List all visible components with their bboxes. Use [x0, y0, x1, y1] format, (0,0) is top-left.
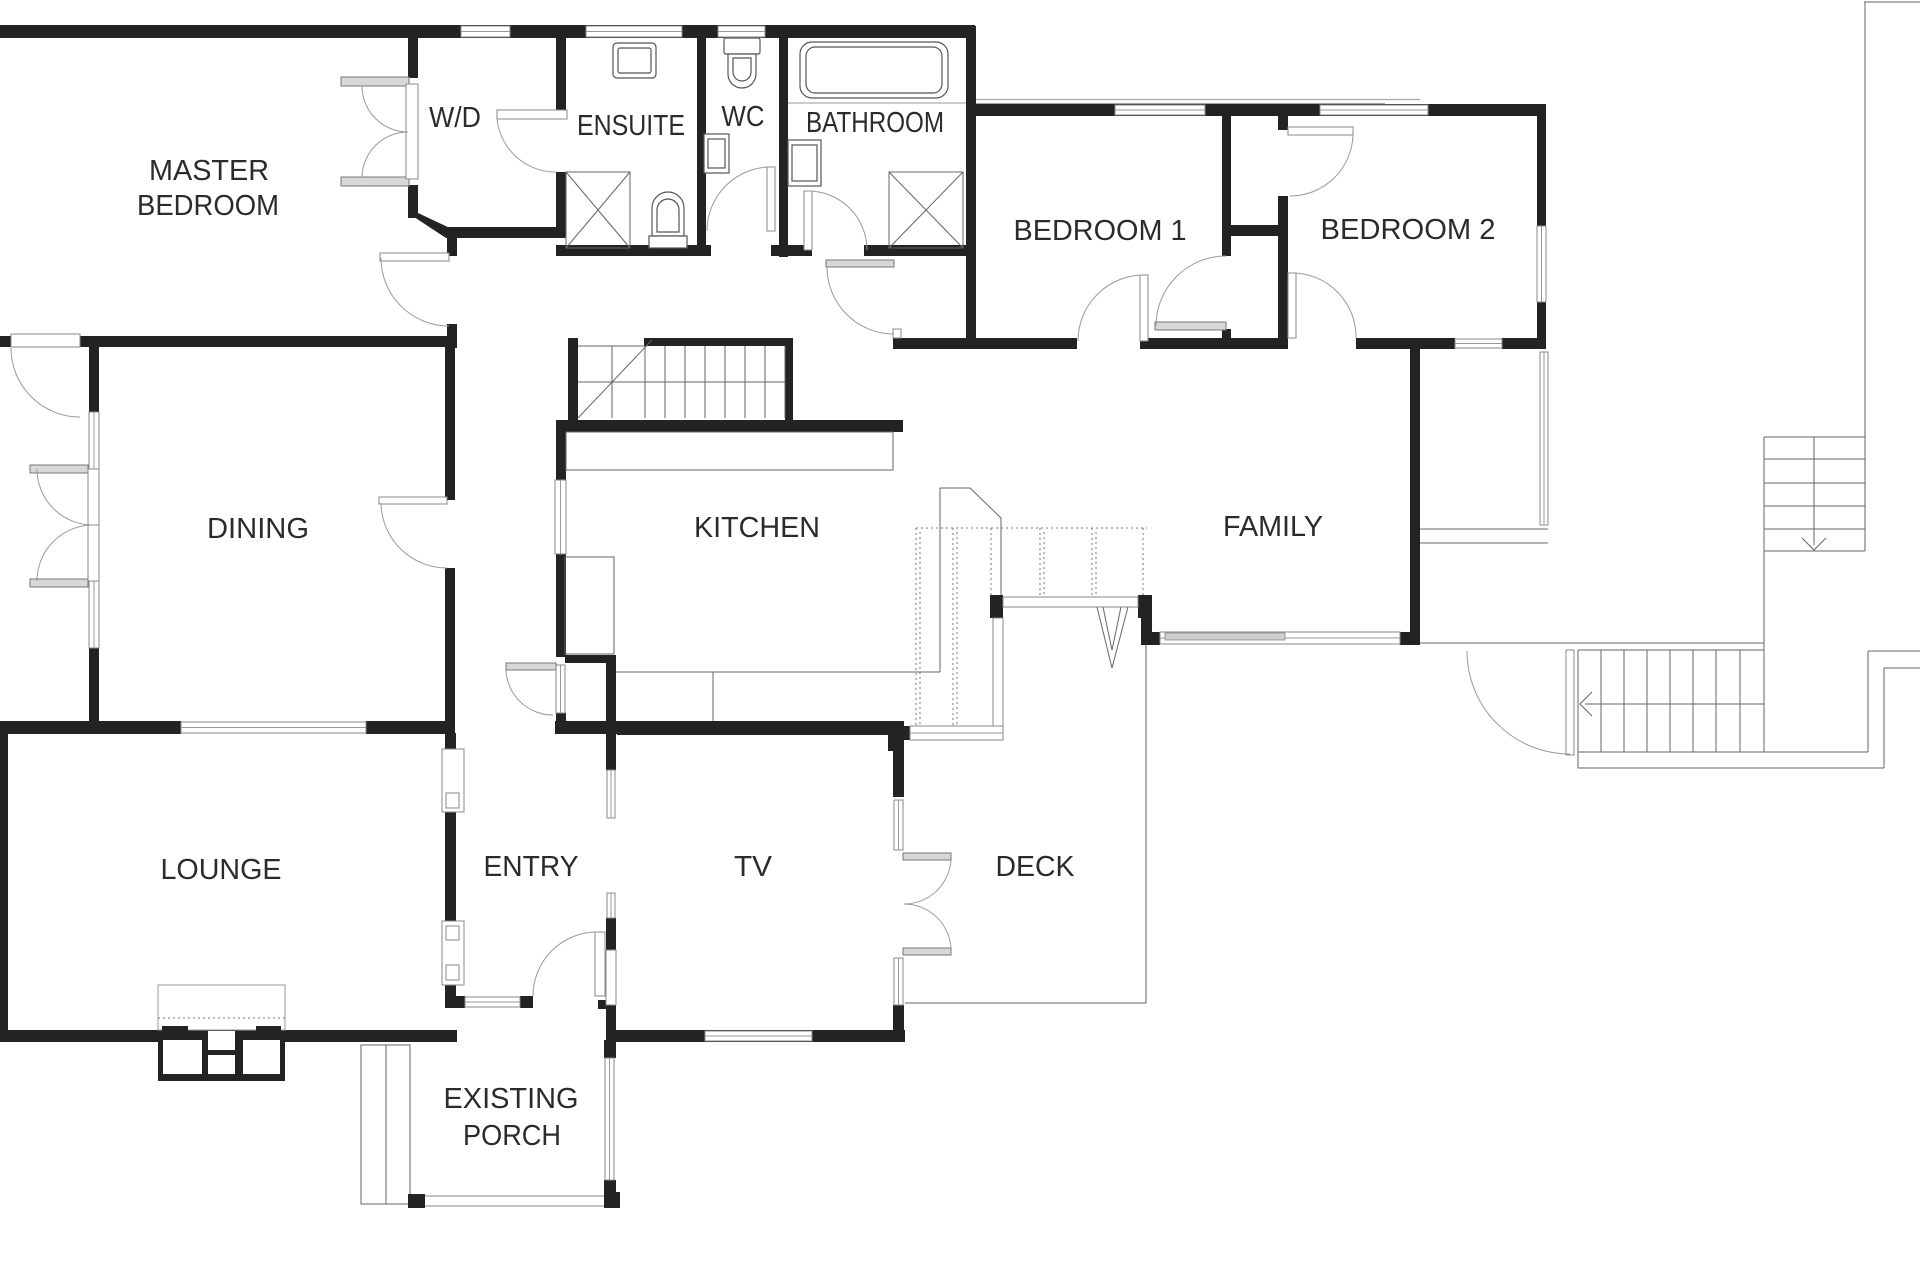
svg-text:DECK: DECK: [996, 851, 1076, 883]
svg-text:DINING: DINING: [207, 513, 309, 545]
svg-text:EXISTING: EXISTING: [444, 1083, 579, 1115]
svg-text:PORCH: PORCH: [463, 1120, 561, 1152]
svg-text:BEDROOM 1: BEDROOM 1: [1014, 215, 1187, 247]
svg-text:WC: WC: [722, 101, 765, 133]
svg-text:KITCHEN: KITCHEN: [694, 512, 820, 544]
svg-text:ENSUITE: ENSUITE: [577, 110, 685, 142]
svg-text:LOUNGE: LOUNGE: [161, 854, 282, 886]
svg-text:W/D: W/D: [429, 102, 481, 134]
svg-text:ENTRY: ENTRY: [484, 851, 579, 883]
svg-text:BATHROOM: BATHROOM: [806, 107, 944, 139]
svg-text:FAMILY: FAMILY: [1223, 511, 1323, 543]
svg-text:MASTER: MASTER: [149, 155, 269, 187]
svg-text:BEDROOM 2: BEDROOM 2: [1321, 214, 1496, 246]
svg-text:TV: TV: [734, 851, 773, 883]
svg-text:BEDROOM: BEDROOM: [137, 190, 279, 222]
